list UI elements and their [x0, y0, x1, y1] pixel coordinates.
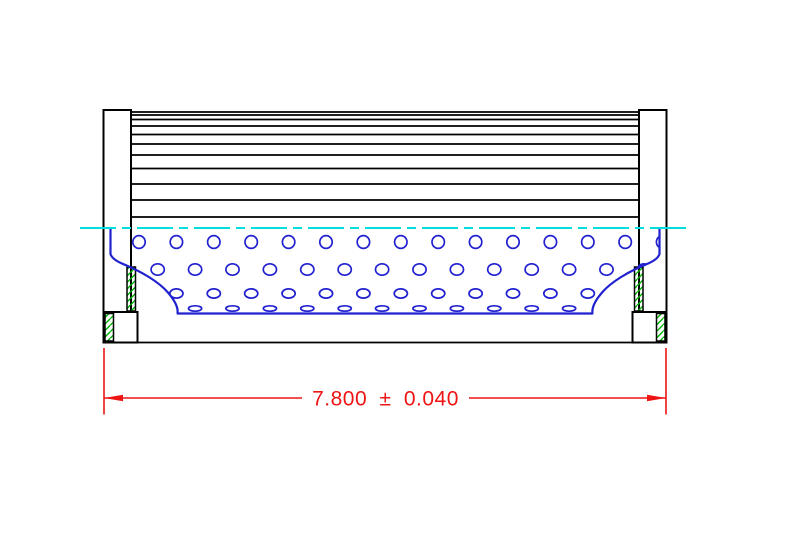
left-flange-section-hatch: [127, 267, 136, 311]
core-perforation-hole: [320, 236, 332, 249]
core-perforation-hole: [525, 306, 538, 311]
core-perforation-hole: [189, 306, 202, 311]
core-perforation-hole: [600, 306, 613, 311]
core-perforation-hole: [338, 264, 351, 275]
right-step-section-hatch: [657, 314, 666, 342]
core-perforation-hole: [450, 264, 463, 275]
core-perforation-hole: [357, 236, 369, 249]
core-perforation-hole: [488, 264, 501, 275]
length-dimension: 7.800 ± 0.040: [104, 348, 666, 415]
core-perforation-hole: [469, 236, 481, 249]
core-perforation-hole: [450, 306, 463, 311]
core-perforation-hole: [189, 264, 202, 275]
core-perforation-hole: [151, 306, 164, 311]
core-perforation-hole: [282, 289, 295, 298]
filter-element-section-drawing: 7.800 ± 0.040: [0, 0, 789, 546]
core-perforation-hole: [282, 236, 294, 249]
core-perforation-hole: [263, 264, 276, 275]
core-perforation-hole: [376, 264, 389, 275]
core-perforation-hole: [245, 236, 257, 249]
core-perforation-hole: [619, 289, 632, 298]
core-perforation-hole: [357, 289, 370, 298]
core-perforation-hole: [338, 306, 351, 311]
core-perforation-hole: [488, 306, 501, 311]
core-perforation-hole: [208, 236, 220, 249]
pleated-media: [131, 112, 639, 217]
core-perforation-hole: [226, 264, 239, 275]
core-perforation-hole: [469, 289, 482, 298]
core-perforation-hole: [301, 306, 314, 311]
core-perforation-hole: [544, 236, 556, 249]
core-perforation-hole: [563, 306, 576, 311]
dimension-arrow-right: [647, 395, 666, 402]
core-perforation-hole: [301, 264, 314, 275]
core-perforation-hole: [207, 289, 220, 298]
dimension-text: 7.800 ± 0.040: [312, 388, 459, 411]
core-perforation-hole: [170, 236, 182, 249]
core-perforation-hole: [525, 264, 538, 275]
core-perforation-hole: [563, 264, 576, 275]
core-perforation-hole: [133, 236, 145, 249]
core-perforation-hole: [544, 289, 557, 298]
drawing-sheet: 7.800 ± 0.040: [0, 0, 789, 546]
core-perforation-hole: [506, 289, 519, 298]
core-perforation-hole: [226, 306, 239, 311]
core-perforation-hole: [619, 236, 631, 249]
core-perforation-hole: [151, 264, 164, 275]
core-perforation-hole: [395, 236, 407, 249]
core-perforation-hole: [432, 236, 444, 249]
core-perforation-hole: [413, 306, 426, 311]
core-seam-profile: [111, 228, 660, 314]
core-perforation-hole: [582, 236, 594, 249]
core-perforation-hole: [376, 306, 389, 311]
right-flange-section-hatch: [635, 267, 644, 311]
core-perforation-hole: [413, 264, 426, 275]
perforated-core-tube: [132, 236, 669, 312]
core-perforation-hole: [507, 236, 519, 249]
core-perforation-hole: [245, 289, 258, 298]
core-perforation-hole: [394, 289, 407, 298]
core-perforation-hole: [581, 289, 594, 298]
core-perforation-hole: [432, 289, 445, 298]
left-step-section-hatch: [105, 314, 114, 342]
dimension-arrow-left: [104, 395, 123, 402]
core-perforation-hole: [600, 264, 613, 275]
core-perforation-hole: [319, 289, 332, 298]
core-perforation-hole: [263, 306, 276, 311]
